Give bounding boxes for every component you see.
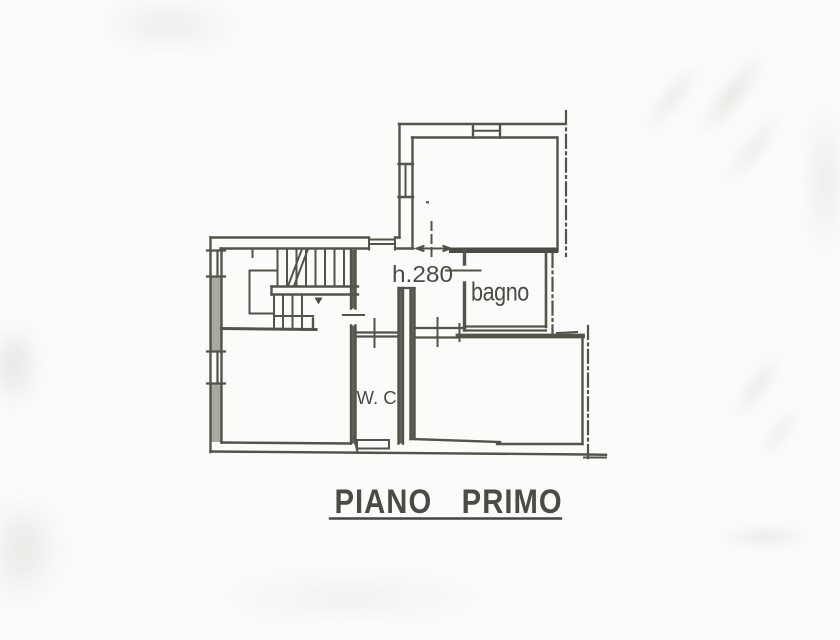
svg-text:W. C.: W. C.	[357, 387, 402, 408]
svg-text:bagno: bagno	[471, 278, 529, 307]
svg-text:h.280: h.280	[392, 261, 453, 287]
svg-text:PIANO PRIMO: PIANO PRIMO	[335, 482, 563, 521]
